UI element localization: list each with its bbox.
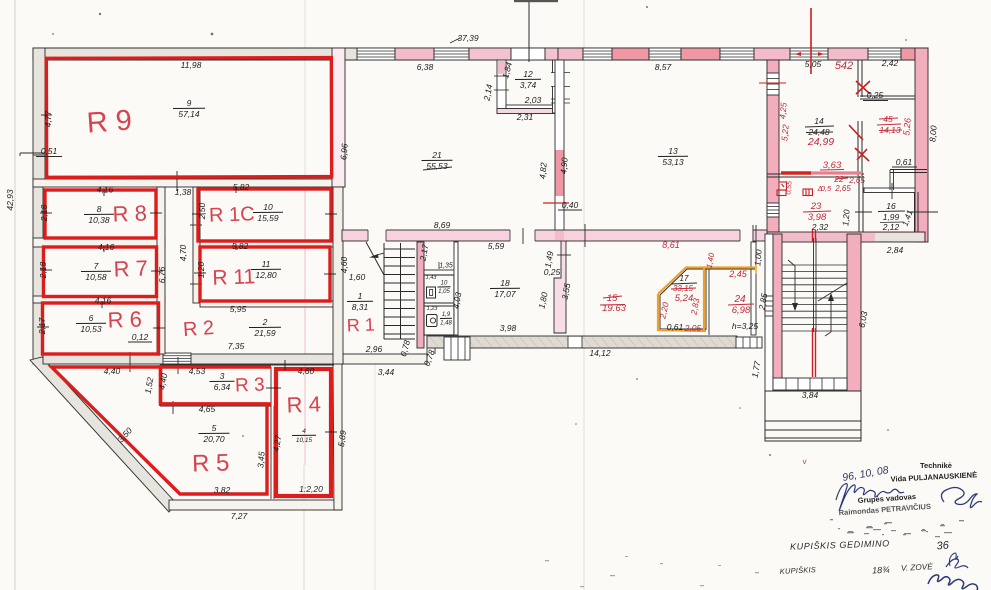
svg-text:8: 8 [97, 204, 102, 214]
svg-text:3: 3 [220, 371, 225, 381]
svg-text:11,98: 11,98 [181, 60, 202, 70]
svg-text:1,38: 1,38 [175, 187, 192, 197]
svg-text:36: 36 [936, 539, 950, 552]
svg-text:12: 12 [523, 69, 533, 79]
svg-text:R 1C: R 1C [209, 203, 255, 227]
svg-text:1,48: 1,48 [440, 321, 452, 327]
svg-text:6,98: 6,98 [732, 305, 751, 316]
svg-text:2,05: 2,05 [684, 323, 702, 333]
svg-text:10,38: 10,38 [88, 215, 110, 225]
svg-text:h=3,25: h=3,25 [732, 321, 759, 331]
svg-text:4,70: 4,70 [178, 244, 188, 261]
svg-text:17,07: 17,07 [494, 289, 516, 299]
svg-text:4,90: 4,90 [558, 157, 569, 175]
svg-text:18¾: 18¾ [872, 565, 891, 576]
svg-text:1,35: 1,35 [439, 263, 453, 270]
svg-text:17: 17 [680, 274, 689, 283]
svg-text:4,60: 4,60 [339, 256, 349, 273]
svg-text:8,57: 8,57 [655, 62, 672, 72]
svg-text:542: 542 [835, 60, 853, 72]
svg-text:6,96: 6,96 [338, 143, 349, 161]
svg-text:2,45: 2,45 [728, 269, 748, 279]
svg-text:9: 9 [187, 98, 192, 108]
svg-text:R 3: R 3 [235, 374, 265, 396]
svg-text:1,99: 1,99 [883, 212, 900, 222]
svg-text:21: 21 [431, 150, 442, 160]
svg-text:0,25: 0,25 [544, 267, 561, 277]
svg-text:R 5: R 5 [192, 449, 230, 477]
svg-text:6,76: 6,76 [157, 266, 167, 283]
svg-text:8,31: 8,31 [352, 302, 369, 312]
svg-text:4: 4 [302, 428, 306, 435]
svg-text:8,00: 8,00 [927, 125, 938, 143]
svg-text:0,61: 0,61 [896, 157, 913, 167]
svg-text:6,34: 6,34 [214, 382, 231, 392]
svg-text:5,05: 5,05 [805, 59, 822, 69]
svg-text:7: 7 [94, 261, 99, 271]
svg-text:2,17: 2,17 [37, 317, 47, 335]
svg-text:23: 23 [810, 201, 822, 212]
svg-text:2,84: 2,84 [886, 245, 904, 255]
svg-text:1,00: 1,00 [752, 249, 763, 267]
svg-text:16: 16 [886, 201, 896, 211]
svg-text:8,69: 8,69 [434, 220, 451, 230]
svg-text:4,16: 4,16 [98, 242, 115, 252]
svg-text:15,59: 15,59 [257, 213, 279, 223]
svg-text:1,23: 1,23 [427, 306, 439, 312]
svg-text:1,9: 1,9 [442, 312, 451, 318]
svg-text:20,70: 20,70 [202, 434, 225, 444]
svg-text:2,18: 2,18 [39, 204, 49, 222]
svg-text:2,18: 2,18 [38, 261, 48, 279]
svg-text:5,82: 5,82 [232, 241, 249, 251]
svg-text:7,35: 7,35 [228, 341, 245, 351]
svg-text:19.63: 19.63 [602, 303, 626, 314]
svg-text:4,60: 4,60 [298, 366, 315, 376]
svg-text:14,12: 14,12 [589, 348, 611, 358]
svg-text:2,42: 2,42 [881, 58, 899, 68]
svg-text:10,53: 10,53 [80, 324, 102, 334]
svg-text:11: 11 [262, 259, 271, 269]
svg-text:0,51: 0,51 [41, 146, 58, 156]
svg-text:5,59: 5,59 [488, 241, 505, 251]
svg-text:3,84: 3,84 [802, 390, 819, 400]
svg-text:2,03: 2,03 [524, 95, 542, 105]
svg-text:2,96: 2,96 [365, 344, 383, 354]
svg-text:14: 14 [814, 116, 824, 126]
svg-text:KUPIŠKIS: KUPIŠKIS [780, 565, 817, 576]
svg-text:53,13: 53,13 [662, 157, 684, 167]
svg-text:2,65: 2,65 [834, 184, 851, 193]
svg-text:10: 10 [441, 281, 448, 287]
svg-text:10,15: 10,15 [296, 437, 313, 444]
svg-text:3,45: 3,45 [255, 451, 266, 469]
svg-text:3,44: 3,44 [378, 367, 395, 377]
svg-text:0,61: 0,61 [667, 322, 684, 332]
svg-text:0,5: 0,5 [821, 184, 832, 193]
svg-text:2: 2 [262, 317, 268, 327]
svg-text:R 6: R 6 [107, 306, 142, 332]
svg-text:57,14: 57,14 [178, 109, 200, 119]
svg-text:R 7: R 7 [113, 255, 148, 281]
svg-text:18: 18 [500, 278, 510, 288]
svg-text:2,31: 2,31 [516, 112, 534, 122]
svg-text:5,26: 5,26 [901, 118, 912, 136]
svg-text:12,80: 12,80 [255, 270, 277, 280]
svg-text:2,50: 2,50 [197, 202, 207, 220]
svg-text:4,65: 4,65 [199, 404, 216, 414]
svg-text:V. ZOVĖ: V. ZOVĖ [901, 561, 934, 573]
svg-text:4,25: 4,25 [777, 102, 788, 120]
svg-text:0,55: 0,55 [785, 181, 793, 195]
svg-text:24,99: 24,99 [807, 136, 834, 148]
svg-text:2,12: 2,12 [882, 222, 900, 232]
svg-text:R 9: R 9 [86, 104, 133, 139]
svg-text:21,59: 21,59 [253, 328, 276, 338]
svg-text:1,20: 1,20 [840, 209, 851, 227]
svg-text:10: 10 [263, 202, 273, 212]
svg-text:R 4: R 4 [286, 391, 321, 417]
svg-text:24: 24 [733, 294, 746, 305]
svg-text:0,25: 0,25 [867, 90, 884, 100]
svg-text:1,20: 1,20 [196, 261, 206, 278]
svg-text:8,61: 8,61 [662, 240, 680, 250]
svg-text:5,22: 5,22 [779, 124, 790, 142]
svg-text:6,38: 6,38 [417, 62, 434, 72]
svg-text:5,95: 5,95 [230, 304, 247, 314]
svg-text:6: 6 [89, 313, 94, 323]
svg-text:42,93: 42,93 [5, 189, 15, 211]
svg-text:4,16: 4,16 [95, 296, 112, 306]
svg-text:R 2: R 2 [182, 317, 215, 341]
svg-text:3,98: 3,98 [500, 323, 517, 333]
svg-text:4,82: 4,82 [537, 162, 548, 180]
svg-text:10,58: 10,58 [85, 272, 107, 282]
svg-text:0,12: 0,12 [132, 332, 149, 342]
svg-text:4,40: 4,40 [104, 366, 121, 376]
svg-text:5,82: 5,82 [233, 182, 250, 192]
svg-text:R 1: R 1 [346, 315, 375, 336]
svg-text:1,05: 1,05 [438, 289, 450, 295]
svg-text:3,82: 3,82 [214, 485, 231, 495]
svg-text:4,53: 4,53 [189, 366, 206, 376]
svg-text:5: 5 [212, 423, 217, 433]
svg-text:1,43: 1,43 [426, 275, 438, 281]
svg-text:R 11: R 11 [212, 265, 256, 289]
svg-text:7,27: 7,27 [231, 511, 248, 521]
svg-text:37,39: 37,39 [457, 33, 479, 43]
svg-text:1: 1 [358, 291, 363, 301]
svg-text:4,16: 4,16 [97, 185, 114, 195]
svg-text:1:2,20: 1:2,20 [299, 484, 323, 494]
svg-text:Technikė: Technikė [920, 461, 952, 470]
svg-text:13: 13 [668, 146, 678, 156]
svg-text:R 8: R 8 [112, 200, 147, 226]
svg-text:3,74: 3,74 [520, 80, 537, 90]
svg-text:Δ: Δ [817, 186, 823, 193]
svg-text:1,60: 1,60 [349, 272, 366, 282]
svg-text:2,32: 2,32 [811, 222, 829, 232]
svg-text:0,40: 0,40 [562, 200, 579, 210]
svg-text:4,77: 4,77 [43, 110, 53, 127]
